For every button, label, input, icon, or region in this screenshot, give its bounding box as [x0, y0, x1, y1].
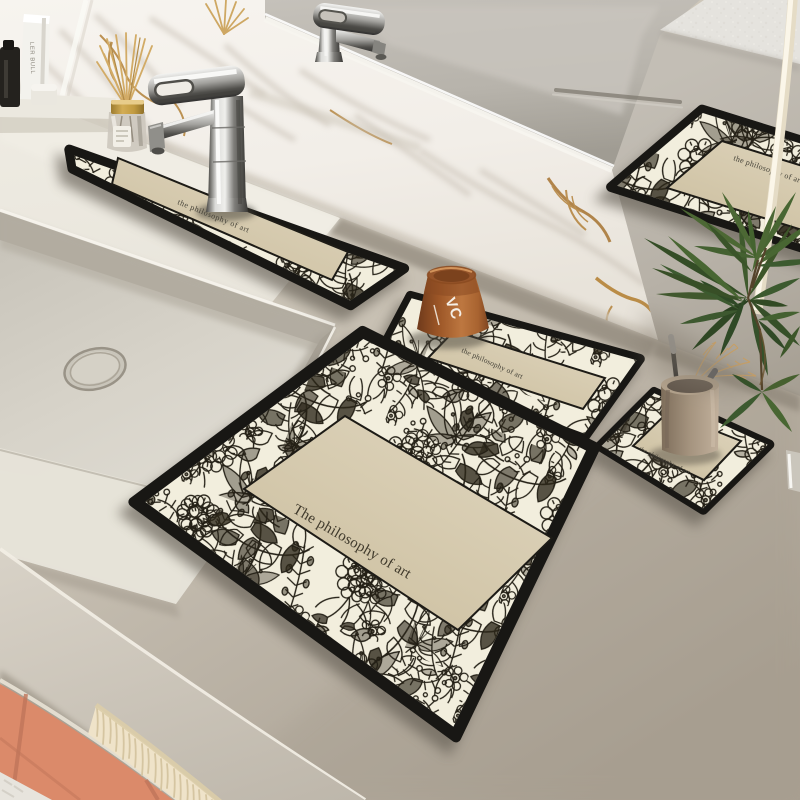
- svg-text:LER BULL: LER BULL: [28, 42, 35, 75]
